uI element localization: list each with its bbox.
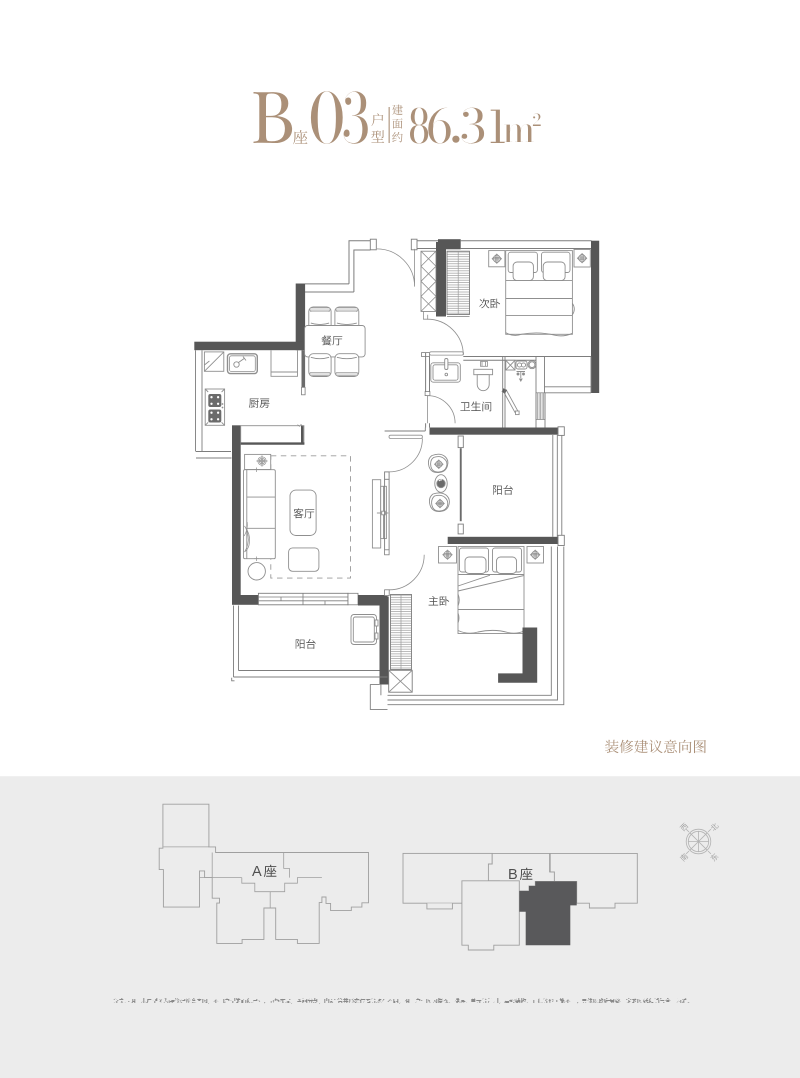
svg-text:B: B xyxy=(508,867,518,883)
svg-text:A: A xyxy=(252,864,262,880)
